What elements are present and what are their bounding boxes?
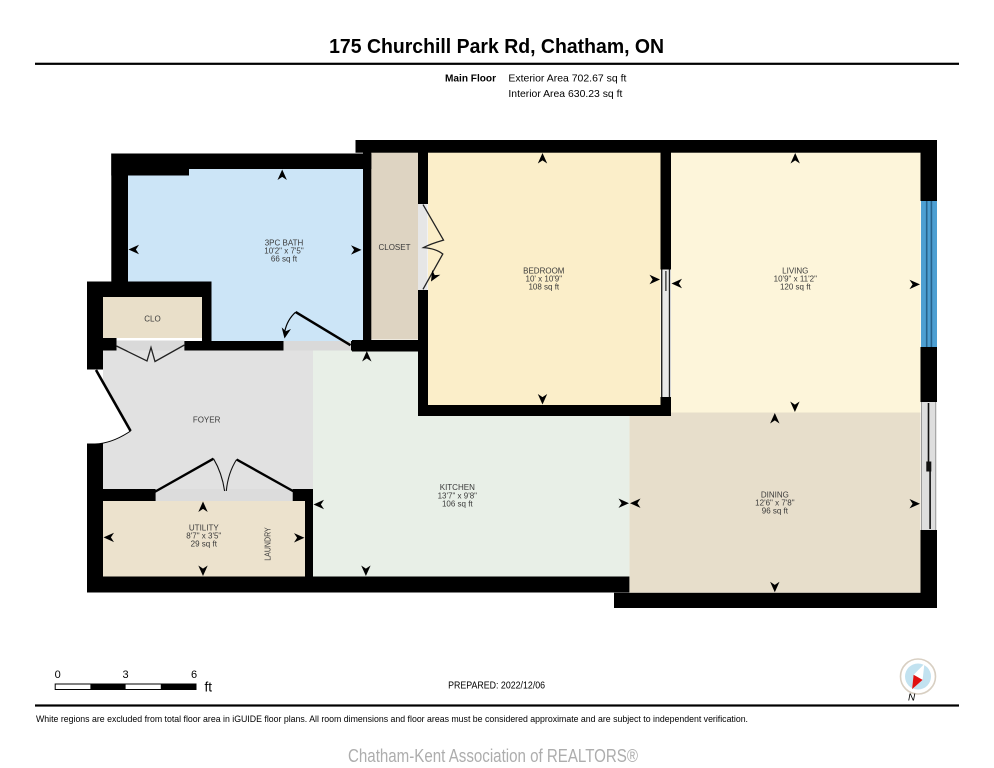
svg-text:Interior Area 630.23 sq ft: Interior Area 630.23 sq ft bbox=[508, 89, 622, 100]
svg-text:66 sq ft: 66 sq ft bbox=[271, 255, 298, 264]
svg-text:CLOSET: CLOSET bbox=[378, 243, 410, 252]
svg-text:0: 0 bbox=[55, 669, 61, 681]
svg-text:6: 6 bbox=[191, 669, 197, 681]
svg-text:CLO: CLO bbox=[144, 315, 160, 324]
svg-text:Exterior Area 702.67 sq ft: Exterior Area 702.67 sq ft bbox=[508, 74, 626, 85]
svg-text:White regions are excluded fro: White regions are excluded from total fl… bbox=[36, 714, 748, 724]
svg-text:Main Floor: Main Floor bbox=[445, 74, 496, 85]
svg-text:106 sq ft: 106 sq ft bbox=[442, 499, 473, 508]
svg-text:LAUNDRY: LAUNDRY bbox=[264, 527, 273, 561]
svg-text:108 sq ft: 108 sq ft bbox=[528, 283, 559, 292]
svg-text:N: N bbox=[908, 693, 916, 704]
svg-text:PREPARED: 2022/12/06: PREPARED: 2022/12/06 bbox=[448, 681, 545, 692]
svg-text:Chatham-Kent Association of RE: Chatham-Kent Association of REALTORS® bbox=[348, 746, 638, 766]
svg-text:FOYER: FOYER bbox=[193, 415, 221, 424]
svg-text:3: 3 bbox=[123, 669, 129, 681]
svg-text:29 sq ft: 29 sq ft bbox=[191, 540, 218, 549]
svg-text:96 sq ft: 96 sq ft bbox=[762, 506, 789, 515]
svg-text:ft: ft bbox=[205, 679, 213, 694]
svg-text:120 sq ft: 120 sq ft bbox=[780, 283, 811, 292]
svg-text:175 Churchill Park Rd, Chatham: 175 Churchill Park Rd, Chatham, ON bbox=[329, 36, 664, 58]
